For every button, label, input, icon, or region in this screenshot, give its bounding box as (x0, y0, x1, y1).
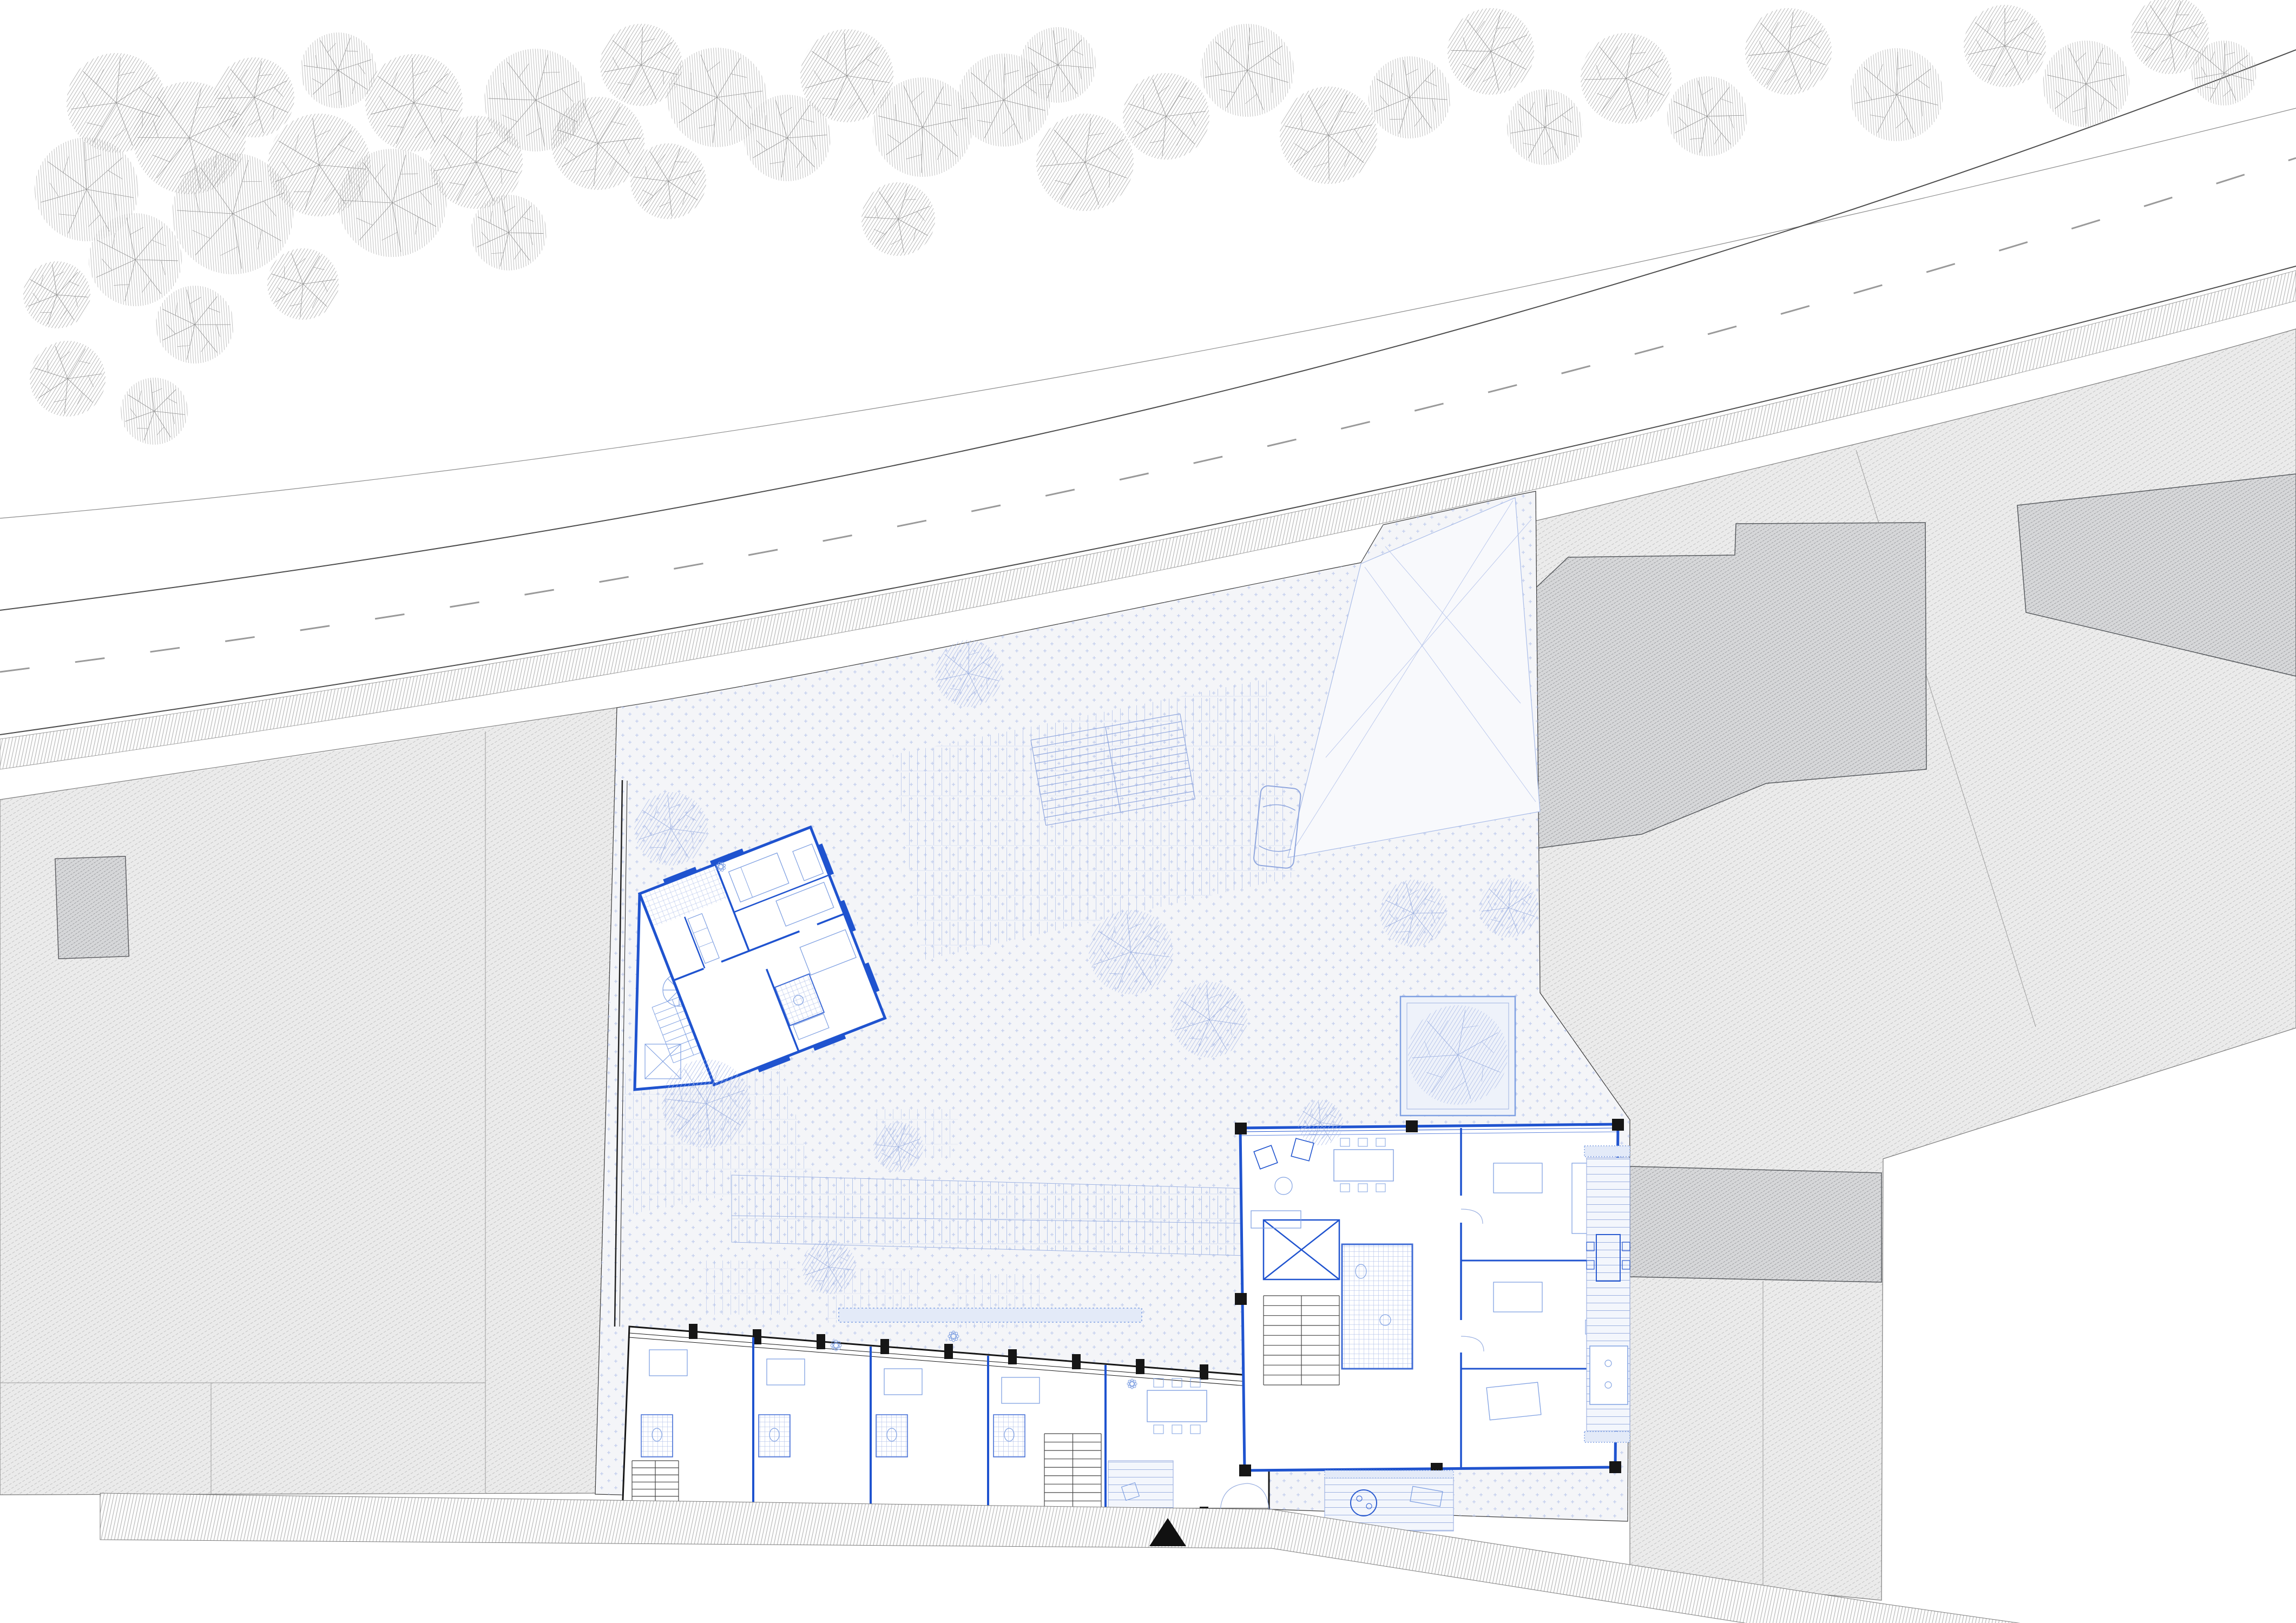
pier (1136, 1359, 1144, 1374)
site-tree-icon (873, 1122, 923, 1172)
site-tree-icon (1089, 910, 1173, 994)
street-tree-icon (471, 195, 547, 270)
street-tree-icon (23, 261, 90, 328)
east-walls (1240, 1124, 1618, 1470)
street-tree-icon (1020, 27, 1096, 103)
street-tree-icon (1667, 76, 1747, 156)
street-tree-icon (1201, 24, 1294, 117)
street-tree-icon (156, 286, 234, 364)
street-tree-icon (1507, 89, 1583, 165)
gray-building-southeast (1630, 1166, 1881, 1282)
street-tree-icon (121, 378, 188, 445)
street-tree-icon (300, 32, 376, 108)
site-tree-icon (935, 640, 1002, 707)
column (1235, 1293, 1247, 1305)
plan-layers (0, 50, 2296, 1623)
street-tree-icon (1280, 87, 1377, 184)
street-tree-icon (1745, 8, 1832, 95)
site-tree-icon (802, 1240, 856, 1294)
site-tree-icon (1479, 878, 1538, 938)
bath-tiles (994, 1415, 1025, 1457)
pier (1072, 1354, 1081, 1369)
hedge (1325, 1470, 1453, 1478)
column (1612, 1119, 1624, 1131)
site-plan-drawing (0, 0, 2296, 1623)
street-tree-icon (1036, 114, 1134, 211)
bath-block (1342, 1244, 1412, 1369)
left-parcels (0, 708, 617, 1495)
column (1406, 1120, 1418, 1132)
pier (1200, 1364, 1208, 1380)
outdoor-kitchen (1590, 1346, 1628, 1404)
bath-tiles (876, 1415, 907, 1457)
gray-building-west (55, 856, 129, 959)
street-tree-icon (1581, 33, 1672, 124)
street-tree-icon (630, 143, 706, 219)
street-tree-icon (1850, 48, 1943, 141)
hedge-row (839, 1308, 1142, 1322)
bath-tiles (641, 1415, 673, 1457)
bath-tiles (759, 1415, 790, 1457)
street-tree-icon (861, 182, 935, 256)
street-tree-icon (214, 57, 294, 137)
sidewalk-south (100, 1493, 2262, 1623)
street-tree-icon (1448, 8, 1534, 95)
pier (689, 1324, 698, 1339)
pier (1008, 1349, 1017, 1364)
street-tree-icon (2043, 41, 2129, 127)
site-tree-icon (1298, 1100, 1343, 1145)
site-tree-icon (662, 1059, 751, 1148)
pier (944, 1344, 953, 1359)
hedge (1584, 1431, 1630, 1442)
parcel-west (0, 708, 617, 1495)
east-deck (1584, 1146, 1630, 1442)
street-tree-icon (1369, 56, 1451, 138)
pier (817, 1334, 825, 1349)
terrace-deck (732, 1175, 1269, 1256)
site-tree-icon (1380, 880, 1447, 947)
site-tree-icon (634, 792, 708, 866)
street-tree-icon (2192, 41, 2256, 105)
street-tree-icon (873, 77, 972, 177)
column (1609, 1461, 1621, 1473)
garden-bed (703, 1261, 795, 1315)
site-plan-canvas (0, 0, 2296, 1623)
column (1239, 1464, 1251, 1476)
street-tree-icon (551, 97, 644, 190)
street-tree-icon (1964, 5, 2046, 87)
hedge (1584, 1146, 1630, 1157)
pier (880, 1339, 889, 1354)
street-tree-icon (1123, 73, 1209, 160)
site-tree-icon (1408, 1005, 1508, 1105)
street-tree-icon (89, 213, 182, 306)
street-tree-icon (267, 248, 339, 320)
column (1235, 1123, 1247, 1134)
street-tree-icon (30, 341, 106, 417)
east-house (1235, 1119, 1624, 1476)
bottom-strip (100, 1493, 2262, 1623)
site-tree-icon (1172, 982, 1247, 1058)
